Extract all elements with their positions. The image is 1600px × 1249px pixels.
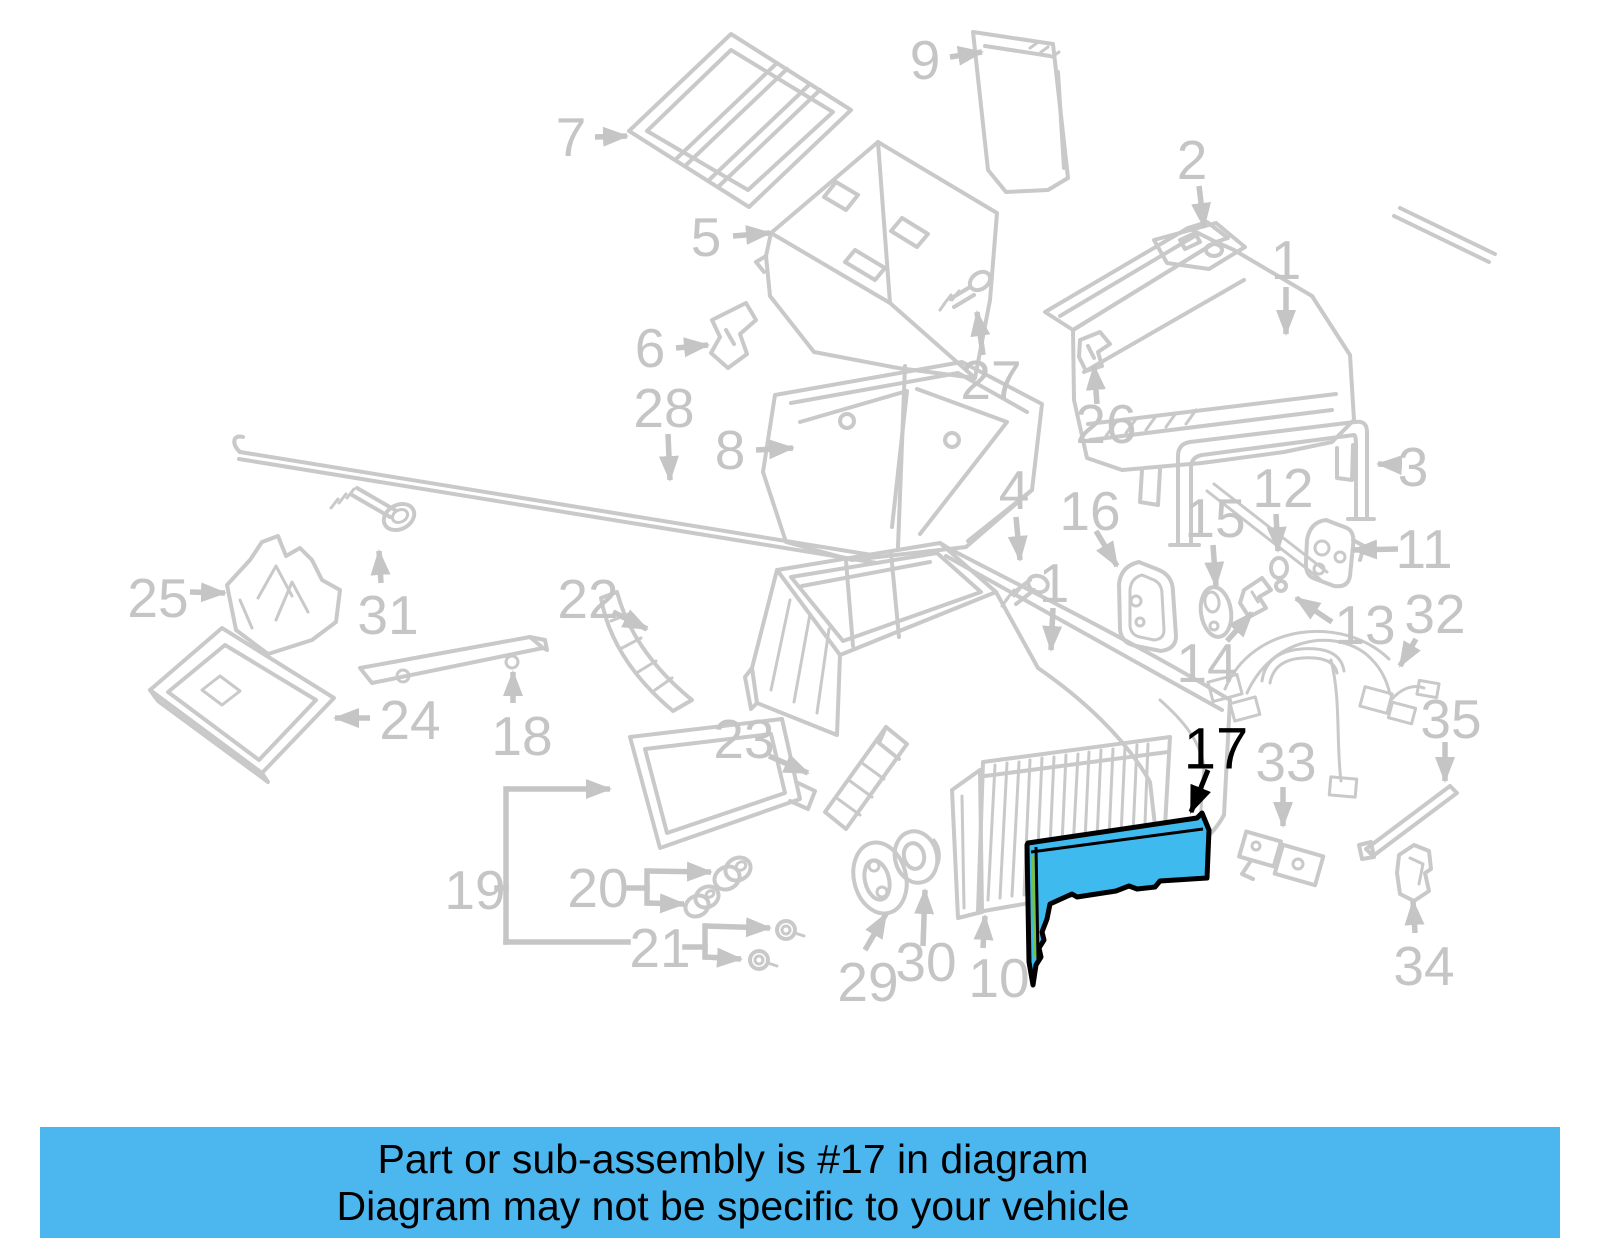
callout-arrow bbox=[865, 914, 886, 950]
part-20-foam-cylinders bbox=[682, 853, 755, 921]
callout-arrow bbox=[379, 551, 381, 583]
part-label-35: 35 bbox=[1420, 688, 1481, 750]
callout-arrow bbox=[705, 926, 770, 928]
part-label-31: 31 bbox=[357, 584, 418, 646]
part-25-mount-bracket bbox=[227, 536, 340, 654]
callout-arrow bbox=[756, 448, 793, 450]
part-label-28: 28 bbox=[633, 377, 694, 439]
callout-arrow bbox=[705, 957, 741, 959]
part-label-6: 6 bbox=[635, 317, 666, 379]
banner-line-2: Diagram may not be specific to your vehi… bbox=[336, 1183, 1129, 1230]
part-16-seal-block bbox=[1119, 562, 1176, 651]
part-label-16: 16 bbox=[1059, 480, 1120, 542]
part-17-highlighted-cover-panel bbox=[1027, 813, 1209, 985]
part-24-lower-tray bbox=[150, 628, 334, 782]
part-label-7: 7 bbox=[556, 106, 587, 168]
callout-arrow bbox=[668, 434, 670, 480]
callout-arrow bbox=[1378, 464, 1400, 465]
callout-arrow bbox=[1016, 517, 1020, 560]
callout-arrow bbox=[1296, 598, 1332, 622]
banner-line-1: Part or sub-assembly is #17 in diagram bbox=[378, 1136, 1089, 1183]
part-label-11: 11 bbox=[1395, 518, 1452, 580]
callout-arrow bbox=[190, 592, 225, 593]
part-9-side-panel bbox=[973, 32, 1068, 192]
callout-arrow bbox=[676, 345, 708, 348]
exploded-parts-diagram: 7569212728826341615121111332142531222418… bbox=[0, 0, 1600, 1249]
part-label-17-highlighted: 17 bbox=[1184, 717, 1249, 782]
callout-arrow bbox=[1199, 186, 1204, 227]
part-label-13: 13 bbox=[1334, 594, 1395, 656]
part-33-servo-actuator bbox=[1239, 832, 1323, 886]
part-label-23: 23 bbox=[713, 708, 774, 770]
callout-arrow bbox=[647, 903, 684, 904]
part-label-4: 4 bbox=[999, 459, 1030, 521]
part-6-hinge-clip bbox=[711, 303, 756, 368]
part-5-upper-case-lid bbox=[756, 142, 997, 378]
part-label-24: 24 bbox=[379, 689, 440, 751]
part-label-5: 5 bbox=[691, 206, 722, 268]
part-7-filter-frame bbox=[629, 34, 851, 207]
lower-blower-case bbox=[745, 543, 996, 735]
callout-arrow bbox=[1213, 545, 1216, 586]
part-2-bracket-plate bbox=[1154, 223, 1245, 269]
part-31-bolt bbox=[331, 488, 419, 535]
part-27-screw bbox=[940, 268, 994, 310]
callout-arrow bbox=[733, 233, 770, 236]
part-label-34: 34 bbox=[1393, 935, 1454, 997]
callout-arrow bbox=[595, 136, 627, 137]
part-label-20: 20 bbox=[567, 857, 628, 919]
part-label-1: 1 bbox=[1271, 229, 1302, 291]
part-label-3: 3 bbox=[1398, 436, 1429, 498]
part-label-32: 32 bbox=[1404, 583, 1465, 645]
part-15-grommet bbox=[1198, 585, 1235, 639]
part-label-8: 8 bbox=[715, 419, 746, 481]
callout-arrow bbox=[1413, 901, 1415, 933]
part-label-26: 26 bbox=[1075, 393, 1136, 455]
part-label-25: 25 bbox=[127, 567, 188, 629]
part-label-22: 22 bbox=[557, 568, 618, 630]
part-label-21: 21 bbox=[629, 917, 690, 979]
part-label-9: 9 bbox=[910, 29, 941, 91]
part-28-actuator-rod bbox=[234, 436, 878, 563]
callout-arrow bbox=[1276, 514, 1278, 551]
part-label-33: 33 bbox=[1255, 731, 1316, 793]
callout-arrow bbox=[1353, 549, 1398, 550]
part-14-clip bbox=[1240, 578, 1271, 617]
part-label-2: 2 bbox=[1177, 129, 1208, 191]
parts-diagram-page: 7569212728826341615121111332142531222418… bbox=[0, 0, 1600, 1249]
part-label-27: 27 bbox=[960, 349, 1021, 411]
part-label-29: 29 bbox=[837, 951, 898, 1013]
part-label-19: 19 bbox=[444, 859, 505, 921]
part-12-washers bbox=[1271, 558, 1287, 591]
part-label-18: 18 bbox=[491, 705, 552, 767]
callout-arrow bbox=[647, 871, 711, 872]
part-label-30: 30 bbox=[895, 931, 956, 993]
callout-arrow bbox=[1051, 608, 1053, 650]
part-label-1: 1 bbox=[1039, 552, 1070, 614]
part-34-sensor-bracket bbox=[1397, 845, 1431, 901]
caption-banner: Part or sub-assembly is #17 in diagram D… bbox=[40, 1127, 1560, 1238]
part-label-14: 14 bbox=[1176, 632, 1237, 694]
part-label-15: 15 bbox=[1184, 487, 1245, 549]
part-label-12: 12 bbox=[1252, 457, 1313, 519]
callout-arrow bbox=[983, 916, 985, 948]
callout-arrow bbox=[769, 756, 808, 773]
part-23-duct-strip bbox=[825, 727, 907, 829]
part-label-10: 10 bbox=[968, 947, 1029, 1009]
